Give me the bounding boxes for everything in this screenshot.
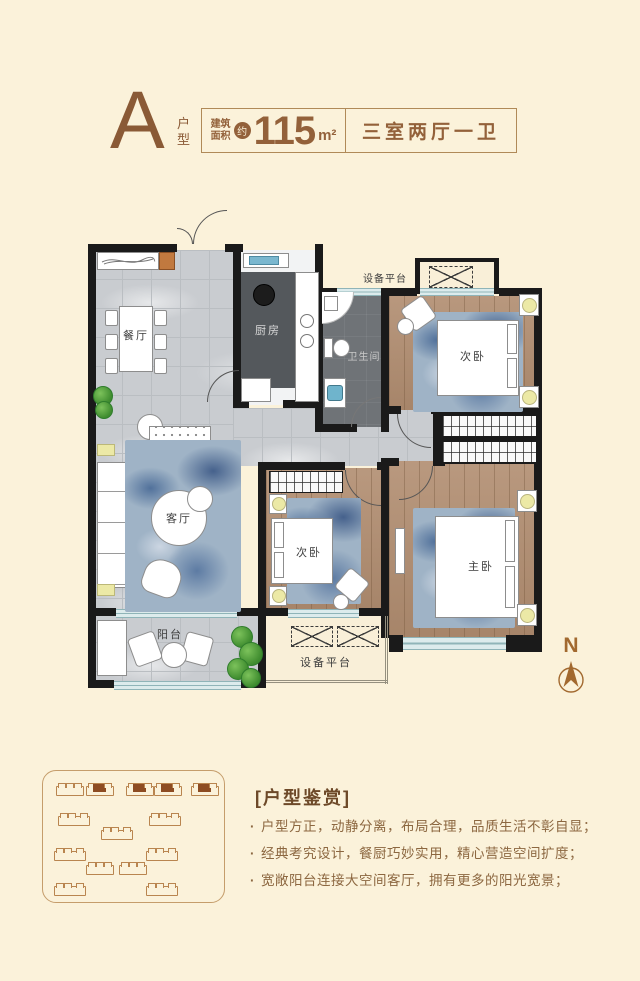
window — [420, 288, 494, 296]
bullet-dot: · — [250, 846, 255, 861]
kettle-icon — [253, 284, 275, 306]
pillow — [274, 522, 284, 548]
feature-text: 宽敞阳台连接大空间客厅，拥有更多的阳光宽景； — [261, 873, 569, 888]
room-label-master: 主卧 — [459, 558, 503, 574]
window — [403, 637, 506, 650]
compass-icon — [552, 658, 590, 696]
balcony-cabinet — [97, 620, 127, 676]
wall-segment — [506, 635, 542, 652]
building-icon-highlighted — [86, 786, 114, 796]
floor-plan: 餐厅 厨房 卫生间 次卧 客厅 阳台 — [85, 230, 547, 695]
lamp-icon — [520, 608, 535, 623]
equipment-box — [337, 626, 379, 647]
building-icon — [146, 886, 178, 896]
pillow — [507, 324, 517, 354]
equipment-border — [385, 616, 388, 684]
wall-segment — [88, 680, 114, 688]
area-unit: m² — [318, 127, 336, 144]
kitchen-cabinet — [241, 378, 271, 402]
building-icon — [86, 865, 114, 875]
appreciation-title: [户型鉴赏] — [255, 784, 351, 810]
unit-type-label: 户型 — [177, 116, 192, 149]
wardrobe — [441, 414, 538, 438]
side-table — [333, 594, 349, 610]
feature-bullet: ·经典考究设计，餐厨巧妙实用，精心营造空间扩度； — [250, 842, 610, 862]
bracket-close: ] — [343, 788, 351, 808]
pillow — [507, 358, 517, 388]
dining-chair — [105, 310, 118, 326]
unit-letter: A — [110, 80, 165, 162]
room-label-bathroom: 卫生间 — [341, 348, 387, 363]
feature-text: 经典考究设计，餐厨巧妙实用，精心营造空间扩度； — [261, 846, 583, 861]
stove-burner — [300, 314, 314, 328]
building-icon-highlighted — [154, 786, 182, 796]
equipment-border — [266, 680, 388, 683]
wall-segment — [258, 462, 345, 470]
building-icon — [56, 786, 84, 796]
wall-segment — [359, 608, 389, 616]
closet — [269, 471, 343, 493]
feature-bullet: ·户型方正，动静分离，布局合理，品质生活不彰自显； — [250, 815, 610, 835]
pillow — [274, 552, 284, 578]
stove-burner — [300, 334, 314, 348]
washer — [324, 296, 338, 311]
lamp-icon — [272, 589, 286, 603]
wall-segment — [389, 406, 401, 414]
wall-segment — [88, 244, 96, 688]
room-label-equipment-bottom: 设备平台 — [281, 654, 371, 670]
side-table — [397, 318, 414, 335]
wall-fixture — [97, 584, 115, 596]
wall-segment — [377, 462, 389, 470]
equipment-box — [291, 626, 333, 647]
kitchen-sink — [249, 256, 279, 265]
area-prefix-line1: 建筑 — [211, 119, 231, 131]
lamp-icon — [522, 298, 537, 313]
dining-chair — [154, 310, 167, 326]
entry-door-arc — [177, 228, 193, 244]
approx-circle: 约 — [234, 122, 251, 139]
bullet-dot: · — [250, 819, 255, 834]
dining-chair — [154, 358, 167, 374]
room-label-balcony: 阳台 — [135, 626, 205, 642]
bracket-open: [ — [255, 788, 263, 808]
entry-door-arc — [193, 210, 227, 244]
area-badge: 建筑 面积 约 115 m² 三室两厅一卫 — [201, 108, 517, 153]
room-label-equipment-top: 设备平台 — [357, 270, 413, 285]
lamp-icon — [522, 390, 537, 405]
room-label-bedroom-top: 次卧 — [451, 348, 495, 364]
toilet-tank — [324, 338, 333, 358]
bullet-dot: · — [250, 873, 255, 888]
wall-segment — [534, 288, 542, 652]
bench — [395, 528, 405, 574]
room-label-bedroom-mid: 次卧 — [287, 544, 331, 560]
side-table — [187, 486, 213, 512]
room-label-kitchen: 厨房 — [243, 322, 293, 338]
building-icon — [119, 865, 147, 875]
feature-bullet: ·宽敞阳台连接大空间客厅，拥有更多的阳光宽景； — [250, 869, 610, 889]
entry-cabinet — [159, 252, 175, 270]
window — [114, 681, 241, 690]
wall-segment — [389, 635, 403, 652]
dining-chair — [105, 358, 118, 374]
pillow — [505, 520, 515, 562]
area-value: 115 — [254, 111, 316, 151]
building-icon — [101, 830, 133, 840]
north-label: N — [556, 634, 586, 658]
feature-text: 户型方正，动静分离，布局合理，品质生活不彰自显； — [261, 819, 597, 834]
wall-fixture — [97, 444, 115, 456]
floorplan-poster: { "header": { "unit_letter": "A", "unit_… — [0, 0, 640, 981]
wall-segment — [237, 608, 266, 616]
window — [288, 609, 359, 618]
lamp-icon — [272, 497, 286, 511]
plant-icon — [95, 401, 113, 419]
building-icon — [58, 816, 90, 826]
area-cell: 建筑 面积 约 115 m² — [202, 109, 346, 152]
appreciation-title-text: 户型鉴赏 — [263, 788, 343, 808]
wall-segment — [266, 608, 288, 616]
decor-squiggle — [98, 253, 158, 269]
wardrobe — [441, 440, 538, 464]
plant-icon — [241, 668, 261, 688]
equipment-box — [429, 266, 473, 288]
pillow — [505, 566, 515, 608]
lamp-icon — [520, 494, 535, 509]
area-prefix: 建筑 面积 — [211, 119, 231, 143]
layout-summary: 三室两厅一卫 — [346, 109, 516, 152]
building-icon-highlighted — [191, 786, 219, 796]
building-icon — [146, 851, 178, 861]
building-icon — [149, 816, 181, 826]
bathroom-sink — [327, 385, 343, 401]
area-prefix-line2: 面积 — [211, 131, 231, 143]
wall-segment — [88, 244, 177, 252]
site-plan — [42, 770, 225, 903]
shoe-cabinet — [97, 252, 159, 270]
building-icon-highlighted — [126, 786, 154, 796]
building-icon — [54, 851, 86, 861]
building-icon — [54, 886, 86, 896]
wall-segment — [415, 258, 499, 262]
room-label-dining: 餐厅 — [111, 327, 161, 343]
room-label-living: 客厅 — [151, 510, 207, 526]
balcony-table — [161, 642, 187, 668]
